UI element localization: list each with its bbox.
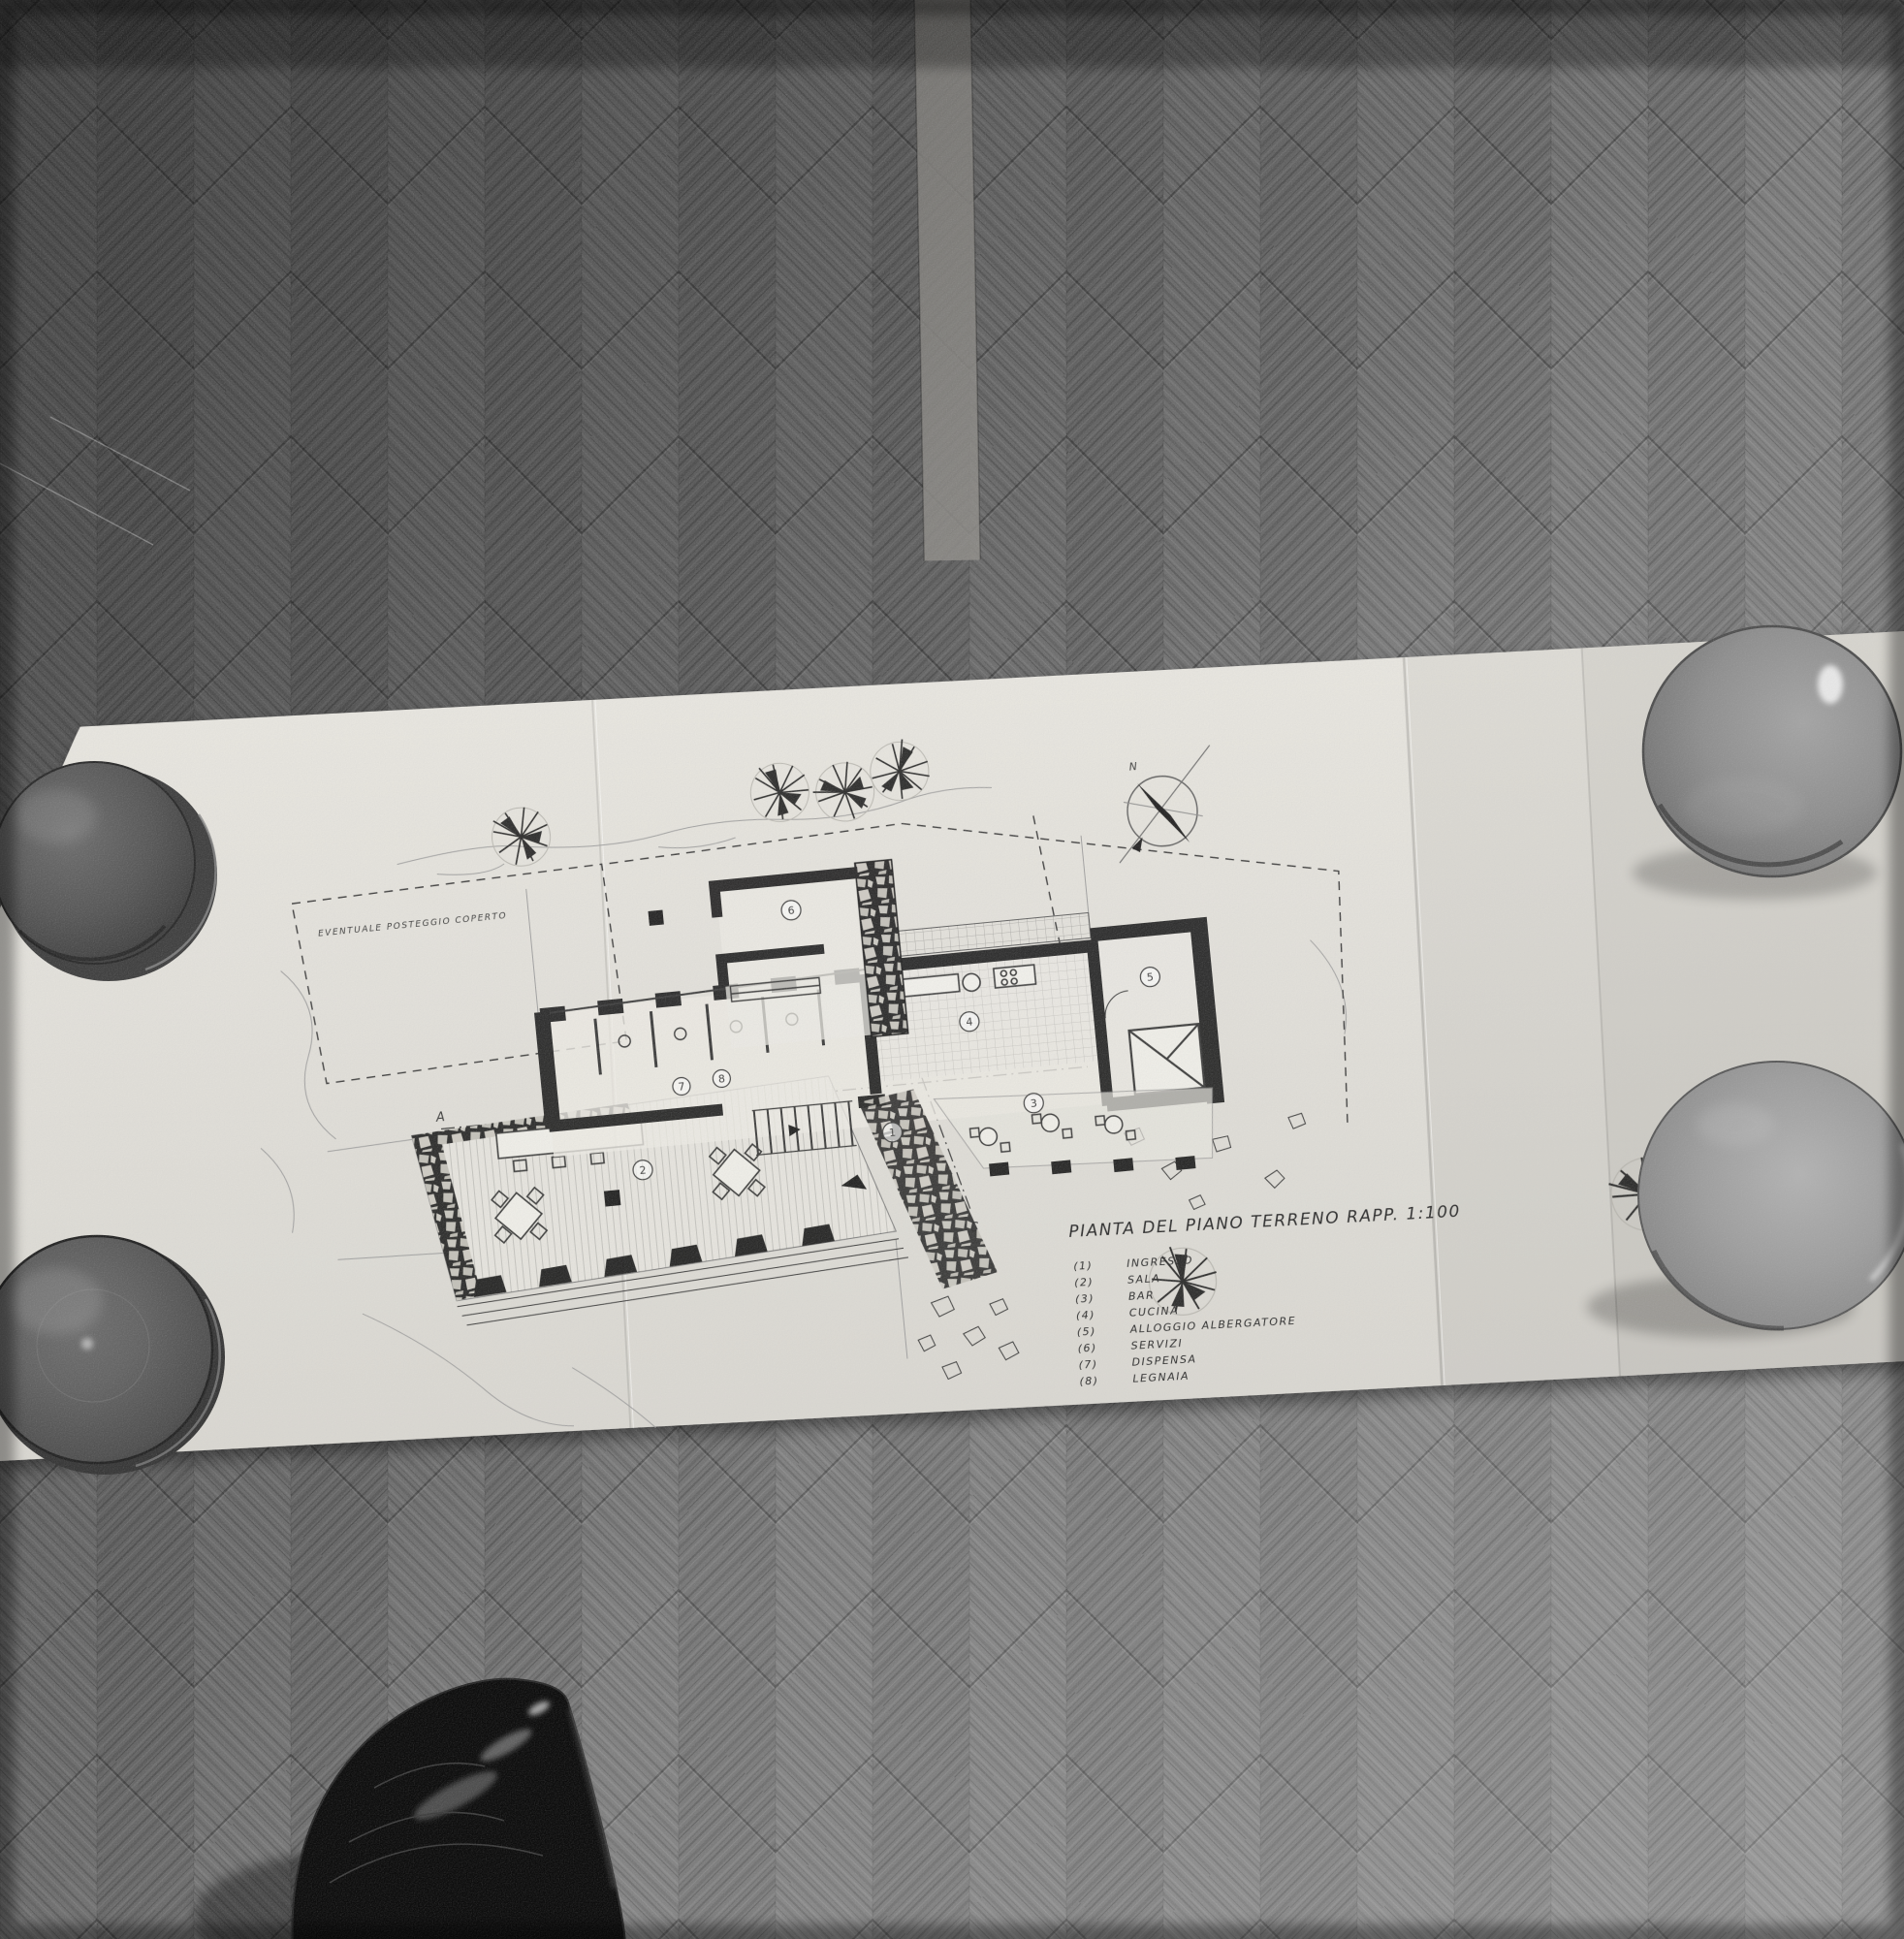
photo-scene: A B C D — [0, 0, 1904, 1939]
film-grain — [0, 0, 1904, 1939]
